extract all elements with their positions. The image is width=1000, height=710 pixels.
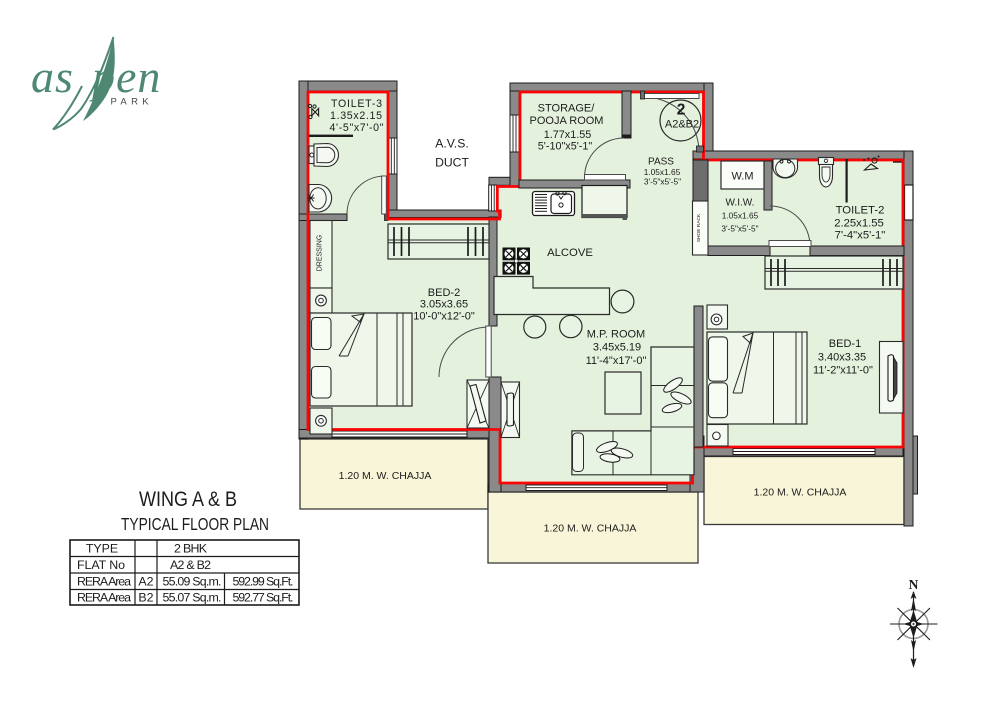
svg-text:2 BHK: 2 BHK (174, 542, 208, 556)
svg-text:A2&B2: A2&B2 (665, 119, 699, 131)
svg-text:RERA Area: RERA Area (77, 575, 131, 589)
svg-text:W.I.W.: W.I.W. (726, 198, 755, 209)
svg-text:BED-2: BED-2 (428, 287, 460, 299)
svg-text:as: as (31, 51, 74, 102)
svg-text:A.V.S.: A.V.S. (435, 137, 468, 151)
svg-text:2: 2 (677, 102, 686, 119)
svg-text:3.45x5.19: 3.45x5.19 (593, 342, 641, 354)
svg-text:ALCOVE: ALCOVE (547, 247, 593, 259)
svg-text:RERA Area: RERA Area (77, 591, 131, 605)
svg-text:2.25x1.55: 2.25x1.55 (834, 218, 884, 230)
svg-text:STORAGE/: STORAGE/ (538, 103, 596, 115)
svg-text:B2: B2 (138, 591, 153, 605)
svg-text:A2: A2 (138, 575, 153, 589)
svg-text:1.20 M. W. CHAJJA: 1.20 M. W. CHAJJA (544, 523, 637, 535)
svg-text:W.M: W.M (732, 171, 754, 183)
svg-text:592.99 Sq.Ft.: 592.99 Sq.Ft. (233, 575, 294, 589)
svg-text:11'-4"x17'-0": 11'-4"x17'-0" (586, 355, 647, 367)
svg-text:55.09 Sq.m.: 55.09 Sq.m. (163, 575, 222, 589)
svg-text:5'-10"x5'-1": 5'-10"x5'-1" (538, 141, 593, 153)
svg-text:DUCT: DUCT (435, 156, 469, 170)
svg-text:3'-5"x5'-5": 3'-5"x5'-5" (644, 177, 681, 187)
svg-text:592.77 Sq.Ft.: 592.77 Sq.Ft. (233, 591, 294, 605)
svg-text:FLAT No: FLAT No (77, 558, 125, 572)
svg-text:11'-2"x11'-0": 11'-2"x11'-0" (813, 365, 873, 377)
svg-text:TOILET-3: TOILET-3 (331, 98, 382, 110)
svg-text:3.40x3.35: 3.40x3.35 (818, 352, 866, 364)
svg-text:N: N (909, 577, 919, 592)
svg-text:1.35x2.15: 1.35x2.15 (330, 110, 382, 122)
svg-text:PASS: PASS (648, 157, 674, 168)
svg-text:TYPE: TYPE (86, 542, 118, 556)
svg-text:PARK: PARK (111, 97, 153, 108)
svg-text:1.05x1.65: 1.05x1.65 (644, 167, 681, 177)
svg-text:55.07 Sq.m.: 55.07 Sq.m. (163, 591, 222, 605)
svg-text:7'-4"x5'-1": 7'-4"x5'-1" (835, 230, 886, 242)
svg-text:WING A & B: WING A & B (139, 487, 237, 511)
svg-text:1.20 M. W. CHAJJA: 1.20 M. W. CHAJJA (339, 470, 432, 482)
svg-text:3'-5"x5'-5": 3'-5"x5'-5" (721, 224, 758, 234)
svg-text:4'-5"x7'-0": 4'-5"x7'-0" (330, 122, 384, 134)
svg-text:SHOE RACK: SHOE RACK (696, 213, 702, 242)
svg-text:TYPICAL FLOOR PLAN: TYPICAL FLOOR PLAN (121, 514, 269, 534)
svg-text:3.05x3.65: 3.05x3.65 (420, 299, 468, 311)
svg-text:POOJA ROOM: POOJA ROOM (530, 115, 604, 127)
svg-text:A2 & B2: A2 & B2 (170, 558, 211, 572)
svg-text:BED-1: BED-1 (829, 338, 861, 350)
svg-text:M.P. ROOM: M.P. ROOM (587, 329, 645, 341)
svg-text:TOILET-2: TOILET-2 (836, 205, 885, 217)
svg-text:1.20 M. W. CHAJJA: 1.20 M. W. CHAJJA (754, 487, 847, 499)
svg-text:10'-0"x12'-0": 10'-0"x12'-0" (413, 311, 475, 323)
svg-text:DRESSING: DRESSING (317, 235, 324, 272)
svg-text:1.77x1.55: 1.77x1.55 (544, 129, 591, 141)
svg-text:1.05x1.65: 1.05x1.65 (722, 211, 759, 221)
